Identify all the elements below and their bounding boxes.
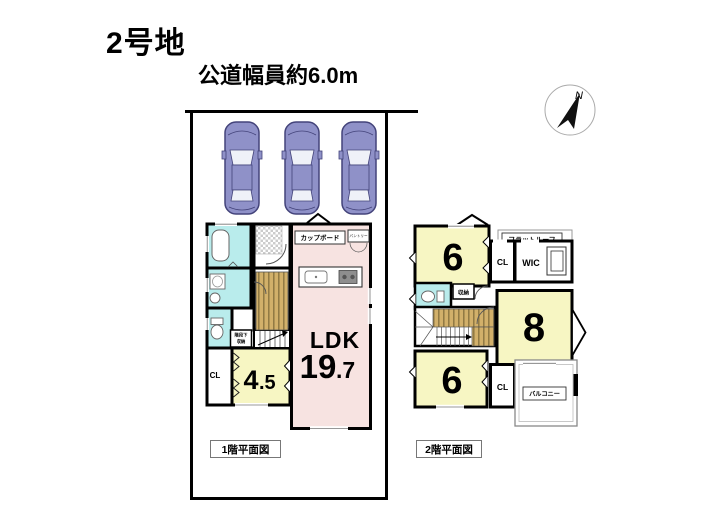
toilet-tank-icon — [211, 318, 223, 325]
site-plan-sheet: 2号地 公道幅員約6.0m N — [0, 0, 705, 525]
room6-top-size: 6 — [442, 237, 463, 279]
window — [493, 240, 507, 244]
under-stair-label-2: 収納 — [237, 338, 246, 345]
roof-gable-mark — [457, 215, 488, 225]
north-arrow-icon — [557, 93, 580, 129]
car-icon — [282, 122, 322, 214]
tatami-size-main: 4 — [243, 365, 258, 395]
parking-area — [218, 120, 383, 217]
floor1-plan: カップボード パントリー 階段下 収納 CL 4 .5 LDK 19 — [203, 206, 375, 432]
stairs-landing — [472, 327, 494, 346]
bathtub-icon — [212, 230, 229, 261]
floor2-plan: フラットルーフ バルコニー — [408, 210, 588, 432]
floor2-caption: 2階平面図 — [416, 440, 482, 458]
car-icon — [222, 122, 262, 214]
storage-label: 収納 — [458, 289, 470, 297]
window — [521, 240, 539, 244]
wic-label: WIC — [522, 258, 540, 268]
cupboard-label: カップボード — [301, 233, 340, 242]
washing-machine-icon — [210, 293, 220, 303]
lot-title: 2号地 — [106, 18, 186, 62]
road-width-label: 公道幅員約6.0m — [198, 58, 358, 90]
entrance-porch-tile — [256, 226, 282, 254]
closet-top-label: CL — [497, 257, 508, 267]
opening-chevron — [410, 252, 416, 264]
balcony-label: バルコニー — [529, 390, 560, 398]
roof-gable-mark — [307, 214, 330, 223]
pantry-label: パントリー — [349, 233, 368, 238]
bay-window — [572, 309, 586, 356]
toilet-bowl-icon — [422, 291, 435, 302]
floor1-caption: 1階平面図 — [210, 440, 281, 458]
opening-chevron — [410, 366, 416, 378]
closet-bottom-label: CL — [497, 382, 508, 392]
stove-burner — [342, 275, 346, 279]
stairs-upper-run — [256, 272, 288, 330]
toilet-bowl-icon — [211, 325, 223, 339]
stairs-upper-run — [433, 309, 494, 327]
stove-burner — [350, 275, 354, 279]
car-icon — [339, 122, 379, 214]
toilet-tank-icon — [437, 291, 444, 302]
under-stair-label-1: 階段下 — [235, 332, 249, 339]
sink-drain — [315, 276, 317, 278]
room8-size: 8 — [523, 306, 545, 350]
tatami-size-frac: .5 — [259, 372, 276, 394]
compass: N — [543, 83, 597, 137]
closet-label-1f: CL — [210, 371, 221, 380]
ldk-size-main: 19 — [300, 348, 337, 385]
room6-bottom-size: 6 — [441, 360, 462, 402]
room6-door-arc — [475, 286, 488, 299]
ldk-size-frac: .7 — [336, 357, 355, 383]
opening-chevron — [410, 293, 416, 305]
balcony-wall-mark — [574, 374, 579, 396]
